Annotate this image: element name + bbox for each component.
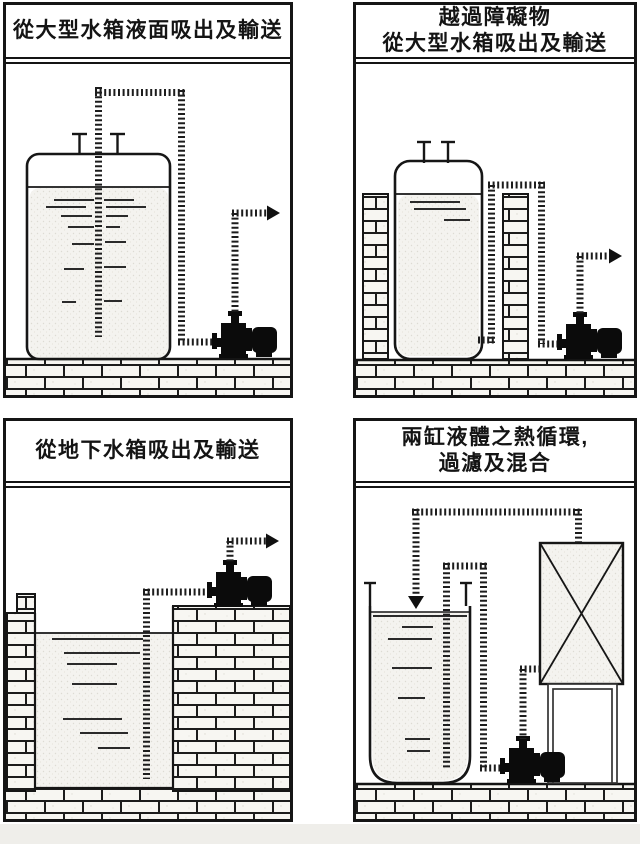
brick-floor — [356, 783, 634, 819]
panel-underground-tank: 從地下水箱吸出及輸送 — [3, 418, 293, 822]
flow-arrow-right-icon — [266, 534, 279, 549]
flow-arrow-down-icon — [408, 596, 424, 609]
diagram-two-tank-circulation — [356, 488, 634, 819]
discharge-pipe — [227, 541, 267, 563]
panel-suction-from-tank-surface: 從大型水箱液面吸出及輸送 — [3, 2, 293, 398]
brick-floor — [6, 789, 290, 819]
diagram-over-obstacle — [356, 64, 634, 395]
pump-icon — [557, 312, 622, 359]
open-tank — [364, 583, 472, 783]
title-divider — [356, 57, 634, 64]
underground-pit — [35, 606, 173, 788]
storage-tank — [395, 142, 482, 359]
brick-floor — [356, 359, 634, 395]
brick-wall-left — [7, 594, 35, 791]
diagram-underground-tank — [6, 488, 290, 819]
brick-wall-left — [363, 194, 388, 359]
panel-title: 兩缸液體之熱循環, 過濾及混合 — [356, 421, 634, 481]
title-divider — [6, 481, 290, 488]
storage-tank — [27, 134, 170, 359]
panel-title: 越過障礙物 從大型水箱吸出及輸送 — [356, 5, 634, 57]
diagram-suction-from-tank-surface — [6, 64, 290, 395]
flow-arrow-right-icon — [267, 206, 280, 221]
flow-arrow-right-icon — [609, 249, 622, 264]
title-divider — [6, 57, 290, 64]
brick-floor — [6, 358, 290, 395]
panel-title: 從地下水箱吸出及輸送 — [6, 421, 290, 481]
discharge-pipe — [577, 256, 610, 315]
pump-icon — [207, 560, 272, 607]
panel-title: 從大型水箱液面吸出及輸送 — [6, 5, 290, 57]
panel-over-obstacle: 越過障礙物 從大型水箱吸出及輸送 — [353, 2, 637, 398]
title-divider — [356, 481, 634, 488]
panel-two-tank-circulation: 兩缸液體之熱循環, 過濾及混合 — [353, 418, 637, 822]
pump-icon — [212, 311, 277, 358]
diagram-sheet: 從大型水箱液面吸出及輸送 — [0, 0, 640, 844]
heat-exchanger — [540, 543, 623, 684]
brick-wall-right — [173, 606, 290, 791]
discharge-pipe — [520, 669, 542, 739]
scan-edge-strip — [0, 824, 640, 844]
discharge-pipe — [232, 213, 268, 314]
brick-wall-obstacle — [503, 194, 528, 359]
